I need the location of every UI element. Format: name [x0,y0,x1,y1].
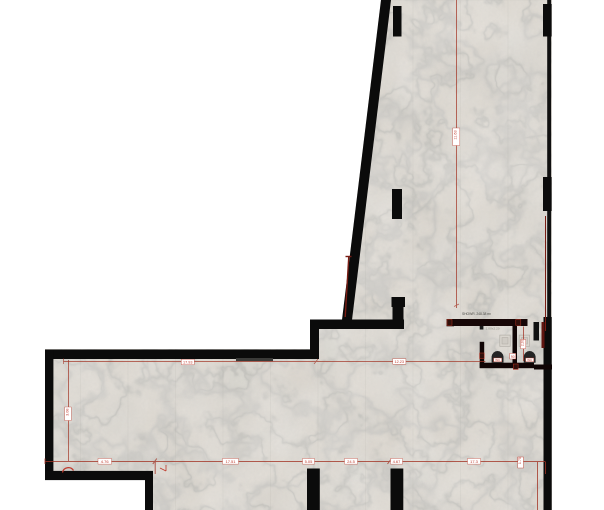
svg-text:SHOWR. 248.38 m²: SHOWR. 248.38 m² [462,312,492,316]
svg-text:4.76: 4.76 [101,459,110,464]
svg-text:2.20: 2.20 [521,340,525,346]
svg-text:17.51: 17.51 [225,459,236,464]
svg-text:17.93: 17.93 [183,361,193,365]
svg-text:WC: WC [527,358,533,362]
svg-text:4.67: 4.67 [393,459,402,464]
svg-text:WC: WC [495,358,501,362]
svg-text:90: 90 [511,355,515,359]
svg-text:12.23: 12.23 [395,360,405,364]
svg-text:5.05: 5.05 [305,459,314,464]
svg-text:1.75: 1.75 [518,457,522,464]
svg-text:17.3: 17.3 [470,459,479,464]
svg-text:24.5: 24.5 [347,459,356,464]
svg-text:11.63: 11.63 [454,130,458,139]
svg-text:1.00x2.20: 1.00x2.20 [486,327,500,331]
svg-text:3.08: 3.08 [65,409,69,416]
